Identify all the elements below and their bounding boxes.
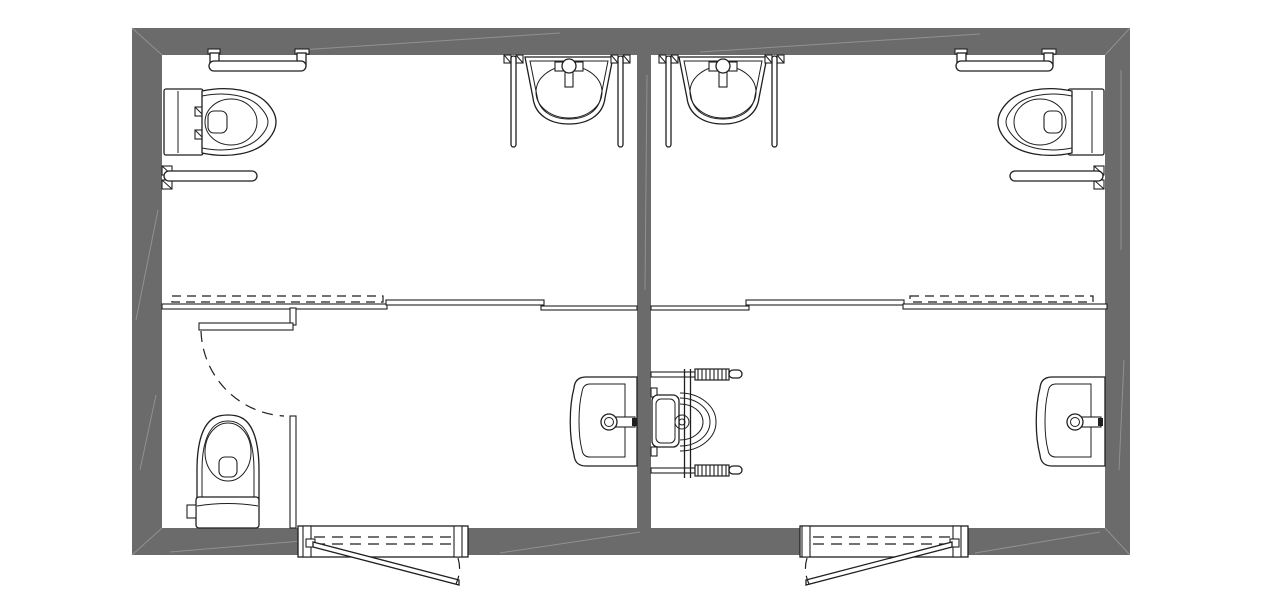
sliding-door-open-position [172,296,383,302]
door-frame [800,526,968,557]
partition-wall-segment [903,304,1107,309]
entrance-door-right [800,526,968,585]
support-rail [611,55,630,147]
left-wall [132,28,162,555]
washbasin-right [679,57,767,124]
door-swing-arc [201,331,284,416]
flush-button [187,505,196,518]
door-frame [298,526,468,557]
floor-plan-canvas [0,0,1263,605]
wall-texture-lines [132,28,1130,555]
sliding-door-open-position [910,296,1093,302]
compartment-screen-wall [290,416,296,528]
toilet-tank [196,497,259,528]
toilet-flush-hole [219,457,237,477]
compartment-door-leaf-open [199,323,293,330]
bottom-wall [132,528,1130,555]
wheelchair-wheel [695,369,729,380]
faucet-handle [1067,414,1083,430]
grab-bar [209,61,306,71]
faucet-handle [562,59,576,73]
toilet-top-right [998,89,1104,156]
grab-bar-left-wall [162,166,257,189]
faucet-base [632,418,637,426]
grab-bar-right-wall [1010,166,1104,189]
wheelchair-handle [729,466,742,474]
exterior-walls [132,28,1130,555]
support-rail [504,55,523,147]
entrance-door-left [298,526,468,585]
toilet-bottom-left [187,415,259,528]
top-wall [132,28,1130,55]
door-jamb [802,526,810,557]
wheelchair-symbol [651,369,742,478]
right-unit-sliding-partition [651,296,1107,310]
support-rail [659,55,678,147]
grab-bar [1010,171,1103,181]
wheelchair-armrest [651,468,695,473]
faucet-handle [716,59,730,73]
grab-bar [164,171,257,181]
partition-wall-segment [162,304,387,309]
sliding-door-panel [746,300,904,305]
wheelchair-wheel [695,465,729,476]
grab-bar [956,61,1053,71]
vanity-sink-right [1036,377,1105,466]
toilet-tank [1068,89,1104,155]
wheelchair-caster [651,447,657,456]
wheelchair-armrest [651,372,695,377]
center-dividing-wall [637,55,651,528]
door-jamb [454,526,462,557]
toilet-flush-hole [208,111,227,133]
washbasin-left [525,57,613,124]
support-rail [765,55,784,147]
restroom-floor-plan [0,0,1263,605]
sliding-door-panel [386,300,544,305]
toilet-tank [164,89,203,155]
wheelchair-handle [729,370,742,378]
left-unit-sliding-partition [162,296,637,310]
toilet-top-left [164,89,276,156]
right-wall [1105,28,1130,555]
toilet-flush-hole [1044,111,1062,133]
wheelchair-backrest-arc [680,404,703,440]
faucet-base [1098,418,1103,426]
vanity-sink-center [570,377,637,466]
partition-wall-segment [651,306,749,310]
faucet-handle [601,414,617,430]
partition-wall-segment [541,306,637,310]
